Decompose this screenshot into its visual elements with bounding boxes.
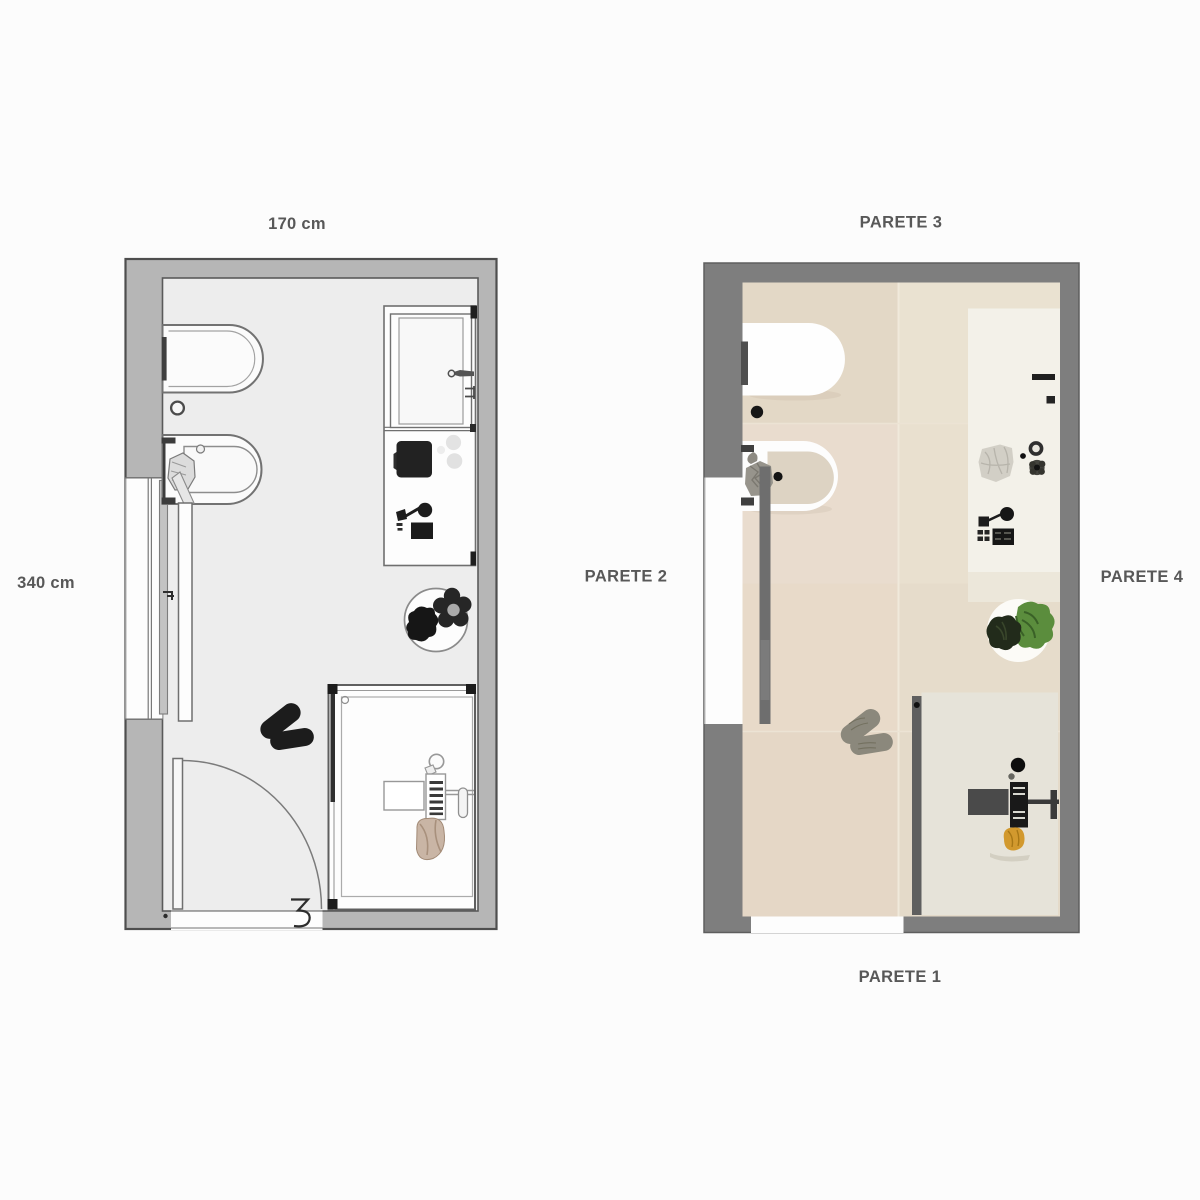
svg-text:PARETE 3: PARETE 3 bbox=[860, 214, 943, 232]
svg-text:340 cm: 340 cm bbox=[17, 574, 75, 592]
svg-text:170 cm: 170 cm bbox=[268, 215, 326, 233]
svg-text:PARETE 2: PARETE 2 bbox=[585, 568, 668, 586]
svg-text:PARETE 1: PARETE 1 bbox=[859, 968, 942, 986]
svg-text:PARETE 4: PARETE 4 bbox=[1101, 568, 1184, 586]
